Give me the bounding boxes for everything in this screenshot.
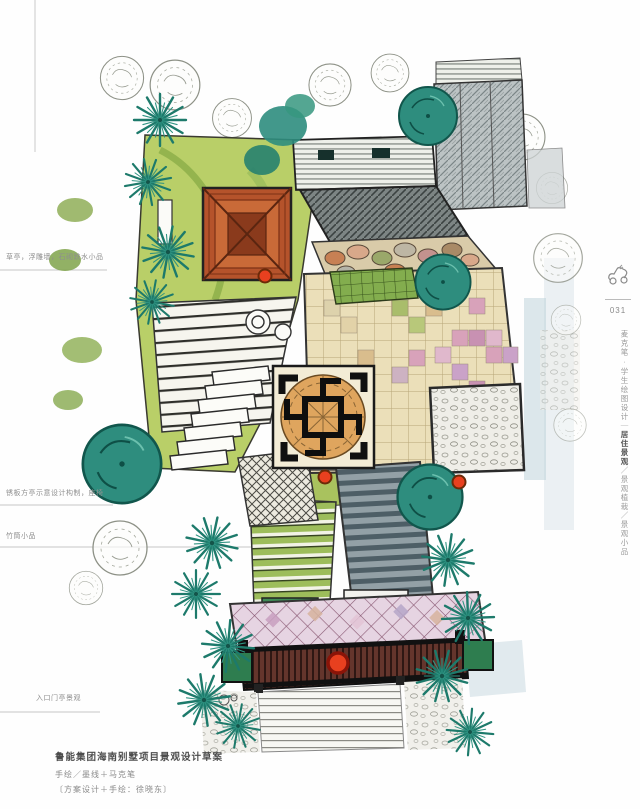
annotation-entrance: 入口门亭景观 [36, 693, 81, 703]
page-number: 031 [602, 306, 634, 315]
plan-title: 鲁能集团海南别墅项目景观设计草案 [55, 749, 223, 767]
annotation-pavilion: 锈板方亭示意设计构制，座椅 [6, 488, 104, 498]
annotation-bamboo: 竹筒小品 [6, 531, 36, 541]
book-page: 草亭，浮雕墙，石砌跌水小品 锈板方亭示意设计构制，座椅 竹筒小品 入口门亭景观 … [0, 0, 640, 809]
entry-steps [258, 684, 404, 752]
pavilion-roof [203, 188, 291, 280]
landscape-plan-drawing [0, 0, 640, 809]
series-title: 麦克笔·学生绘图设计｜ [620, 330, 629, 431]
caption-block: 鲁能集团海南别墅项目景观设计草案 手绘／墨线＋马克笔 〔方案设计＋手绘：徐晓东〕 [55, 749, 223, 797]
current-section: 居住景观 [620, 431, 629, 467]
sidebar-divider [605, 299, 631, 300]
sketch-doodle-icon [605, 262, 631, 288]
sidebar-vertical-text: 麦克笔·学生绘图设计｜居住景观／景观植栽／景观小品 [621, 330, 629, 590]
page-sidebar: 031 [602, 262, 634, 315]
other-sections: ／景观植栽／景观小品 [620, 467, 629, 557]
annotation-waterfall: 草亭，浮雕墙，石砌跌水小品 [6, 252, 104, 262]
credit-line: 〔方案设计＋手绘：徐晓东〕 [55, 782, 223, 797]
central-medallion [273, 366, 374, 468]
media-line: 手绘／墨线＋马克笔 [55, 767, 223, 782]
